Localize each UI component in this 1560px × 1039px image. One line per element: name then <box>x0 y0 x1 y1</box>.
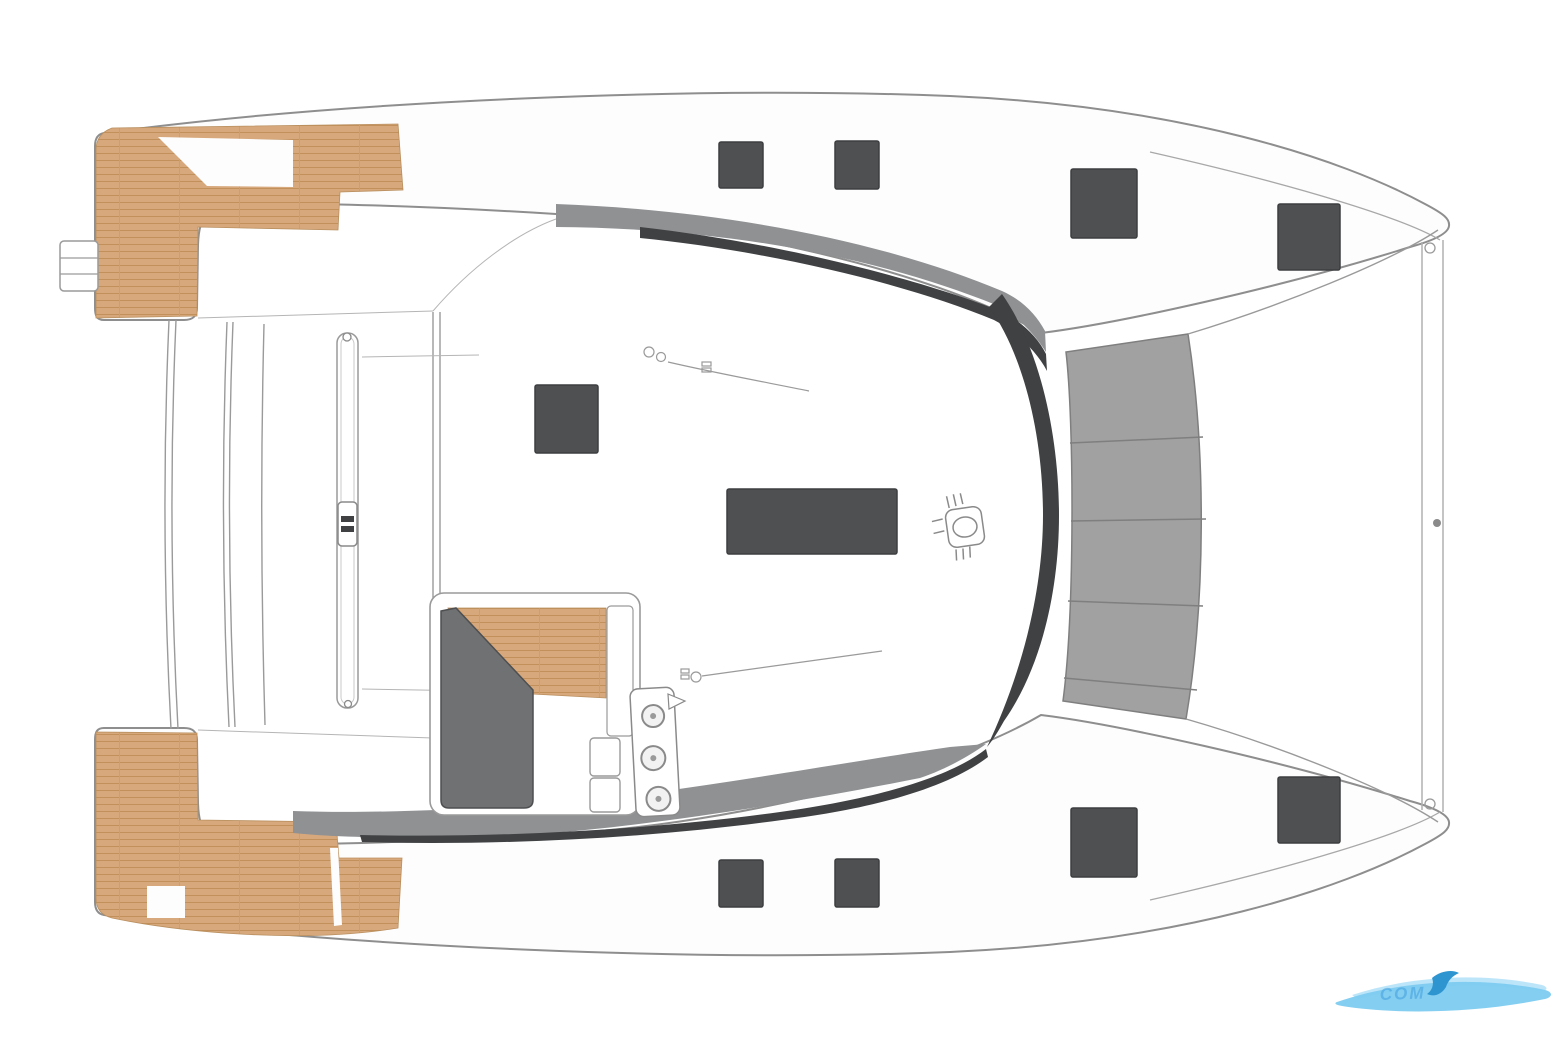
windlass-icon <box>929 491 988 563</box>
catamaran-deck-plan-svg: COM <box>0 0 1560 1039</box>
starboard-teak-notch <box>147 886 185 918</box>
starboard-bow-hatch <box>1278 777 1340 843</box>
traveller-track <box>337 333 358 708</box>
salon-skylight <box>727 489 897 554</box>
helm-side-panel <box>607 606 633 736</box>
line-clutch-bank <box>590 738 620 776</box>
shackle-icon <box>691 672 701 682</box>
track-end-fitting <box>345 701 352 708</box>
cockpit-bench-line <box>262 324 265 725</box>
line-clutch-icon <box>702 362 711 366</box>
port-hull-aft-hatch <box>719 142 763 188</box>
coachroof-corner-top <box>433 219 556 311</box>
line-clutch-icon <box>681 675 689 679</box>
shackle-icon <box>657 353 666 362</box>
helm-station <box>430 593 685 817</box>
transom-step-line <box>172 320 178 729</box>
coachroof-arc-dark <box>987 294 1059 747</box>
line-clutch-icon <box>681 669 689 673</box>
door-stub-top <box>362 355 479 357</box>
transom-step-line <box>165 320 171 729</box>
shackle-icon <box>644 347 654 357</box>
halyard-line <box>702 651 882 676</box>
track-end-fitting <box>343 333 351 341</box>
cockpit-edge-top <box>198 311 433 318</box>
console-pennant-icon <box>668 694 685 709</box>
watermark: COM <box>1335 971 1551 1011</box>
starboard-hull-mid-hatch <box>835 859 879 907</box>
port-foredeck-hatch <box>1071 169 1137 238</box>
forestay-bridle-point <box>1433 519 1441 527</box>
coachroof-hatch <box>535 385 598 453</box>
traveller-car <box>338 502 357 546</box>
starboard-hull-aft-hatch <box>719 860 763 907</box>
watermark-text: COM <box>1379 983 1425 1004</box>
transom-step-line <box>223 322 229 727</box>
trampoline-net <box>1063 334 1201 719</box>
port-bow-hatch <box>1278 204 1340 270</box>
swim-ladder <box>60 241 98 291</box>
starboard-foredeck-hatch <box>1071 808 1137 877</box>
foredeck-rigging <box>1186 230 1443 822</box>
transom-step-line <box>229 322 235 727</box>
cockpit-edge-bottom <box>198 730 433 738</box>
halyard-line <box>668 362 809 391</box>
port-bow-fitting <box>1425 243 1435 253</box>
deck-plan-canvas: COM <box>0 0 1560 1039</box>
line-clutch-bank <box>590 778 620 812</box>
trampoline <box>1063 334 1206 719</box>
port-hull-mid-hatch <box>835 141 879 189</box>
